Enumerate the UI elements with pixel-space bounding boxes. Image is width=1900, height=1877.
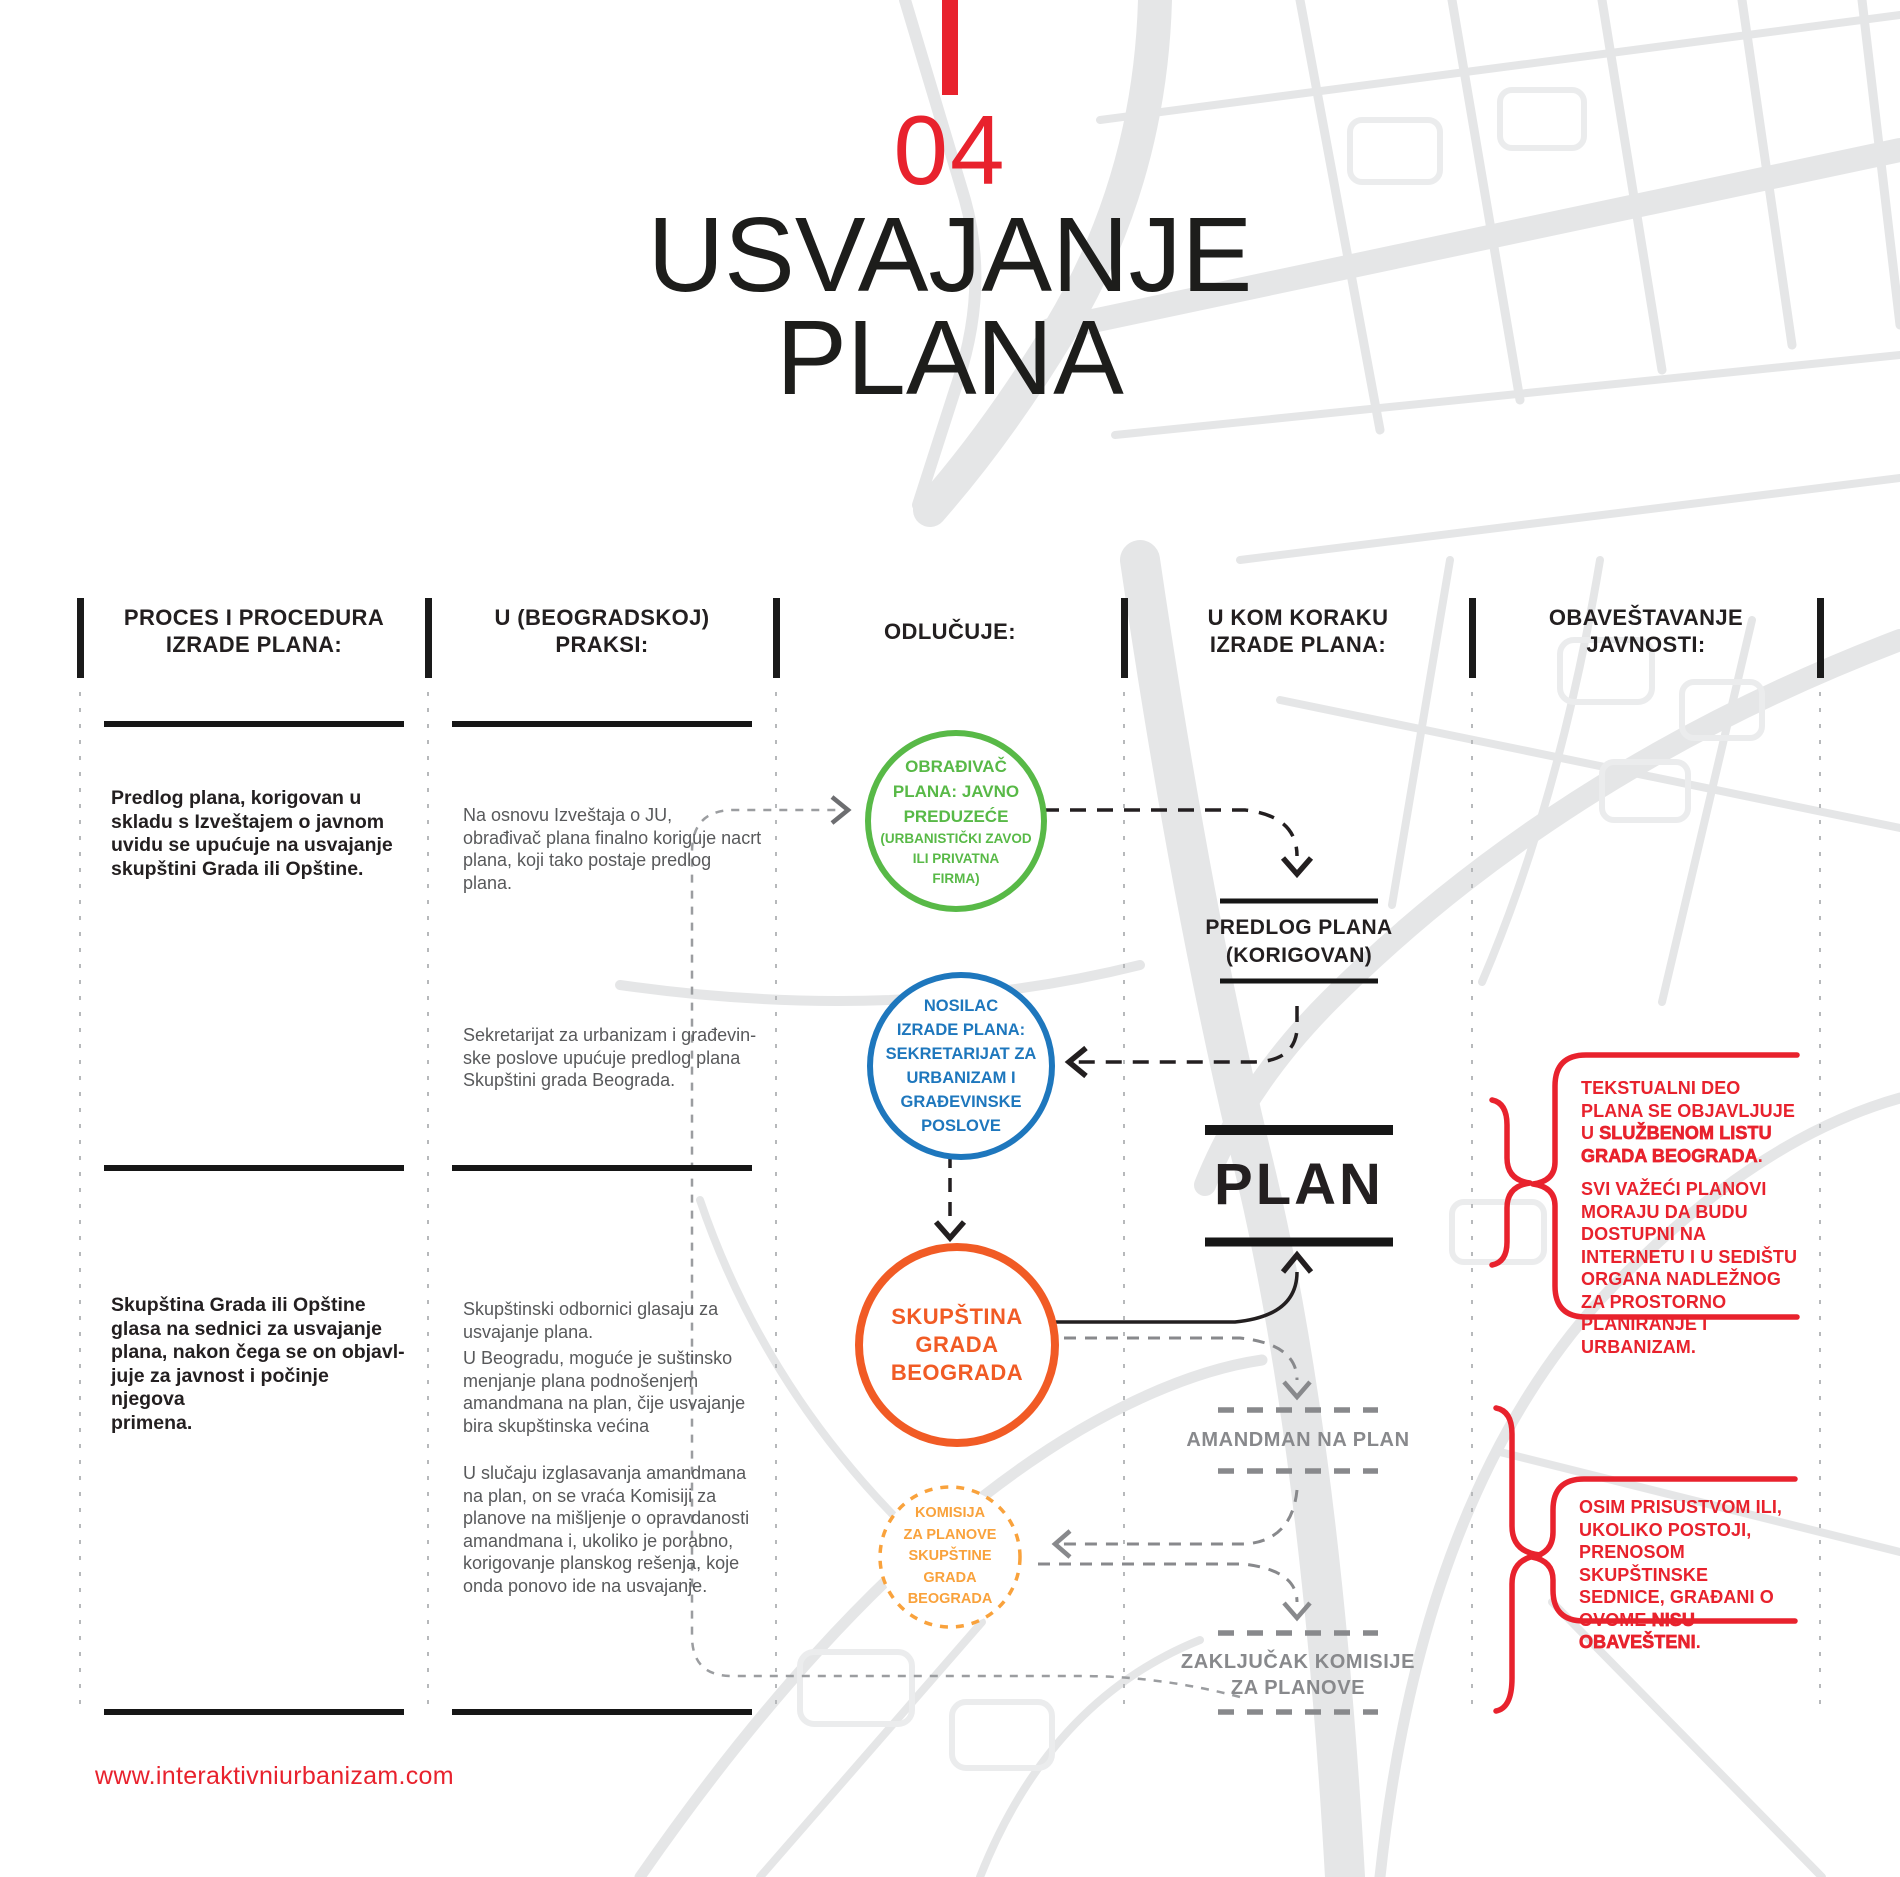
practice-block-1: Na osnovu Izveštaja o JU, obrađivač plan… — [463, 804, 763, 894]
practice-block-2: Sekretarijat za urbanizam i građevin- sk… — [463, 1024, 763, 1092]
column-header-practice: U (BEOGRADSKOJ) PRAKSI: — [437, 604, 767, 658]
step-plan: PLAN — [1214, 1150, 1384, 1220]
column-bar-6 — [1817, 598, 1824, 678]
chapter-marker-bar — [942, 0, 958, 95]
step-predlog-plana: PREDLOG PLANA (KORIGOVAN) — [1205, 914, 1392, 970]
practice-rule-bottom — [452, 1709, 752, 1715]
website-url-link[interactable]: www.interaktivniurbanizam.com — [95, 1762, 454, 1791]
column-header-public: OBAVEŠTAVANJE JAVNOSTI: — [1481, 604, 1811, 658]
infographic-canvas: 04 USVAJANJE PLANA PROCES I PROCEDURA IZ… — [0, 0, 1900, 1877]
step-rules — [1205, 901, 1393, 1712]
process-block-1: Predlog plana, korigovan u skladu s Izve… — [111, 787, 407, 881]
connector-green-to-predlog — [1043, 810, 1311, 874]
column-bar-2 — [425, 598, 432, 678]
column-bar-5 — [1469, 598, 1476, 678]
connector-orange-to-plan — [1045, 1255, 1311, 1322]
decider-komisija-circle: KOMISIJA ZA PLANOVE SKUPŠTINE GRADA BEOG… — [880, 1487, 1020, 1627]
step-amandman: AMANDMAN NA PLAN — [1186, 1429, 1409, 1452]
practice-block-4: U Beogradu, moguće je suštinsko menjanje… — [463, 1347, 763, 1437]
column-header-decides: ODLUČUJE: — [785, 604, 1115, 645]
column-header-process: PROCES I PROCEDURA IZRADE PLANA: — [89, 604, 419, 658]
notice-publication: TEKSTUALNI DEO PLANA SE OBJAVLJUJE U SLU… — [1581, 1077, 1807, 1369]
practice-block-3: Skupštinski odbornici glasaju za usvajan… — [463, 1298, 763, 1343]
decider-obradjivac-circle: OBRAĐIVAČ PLANA: JAVNO PREDUZEĆE (URBANI… — [865, 730, 1047, 912]
decider-skupstina-circle: SKUPŠTINA GRADA BEOGRADA — [855, 1243, 1059, 1447]
connector-komisija-to-zakljucak — [1038, 1564, 1310, 1618]
connector-predlog-to-blue — [1069, 1006, 1297, 1076]
decider-nosilac-circle: NOSILAC IZRADE PLANA: SEKRETARIJAT ZA UR… — [867, 972, 1055, 1160]
sessions-brace — [1496, 1408, 1540, 1711]
process-rule-bottom — [104, 1709, 404, 1715]
column-header-step: U KOM KORAKU IZRADE PLANA: — [1133, 604, 1463, 658]
practice-block-5: U slučaju izglasavanja amandmana na plan… — [463, 1462, 763, 1597]
practice-rule-mid — [452, 1165, 752, 1171]
notice-sessions: OSIM PRISUSTVOM ILI, UKOLIKO POSTOJI, PR… — [1579, 1496, 1799, 1665]
plan-brace — [1492, 1100, 1530, 1265]
page-title-line1: USVAJANJE — [648, 204, 1253, 307]
column-bar-4 — [1121, 598, 1128, 678]
page-title: USVAJANJE PLANA — [648, 204, 1253, 410]
connector-orange-to-amandman — [1043, 1338, 1310, 1397]
chapter-number: 04 — [893, 100, 1006, 200]
process-rule-mid — [104, 1165, 404, 1171]
column-bar-3 — [773, 598, 780, 678]
process-rule-top — [104, 721, 404, 727]
connector-blue-to-orange — [936, 1154, 964, 1238]
column-bar-1 — [77, 598, 84, 678]
process-block-2: Skupština Grada ili Opštine glasa na sed… — [111, 1294, 407, 1435]
practice-rule-top — [452, 721, 752, 727]
step-zakljucak: ZAKLJUČAK KOMISIJE ZA PLANOVE — [1181, 1649, 1415, 1701]
connector-amandman-to-komisija — [1055, 1490, 1297, 1557]
page-title-line2: PLANA — [648, 307, 1253, 410]
